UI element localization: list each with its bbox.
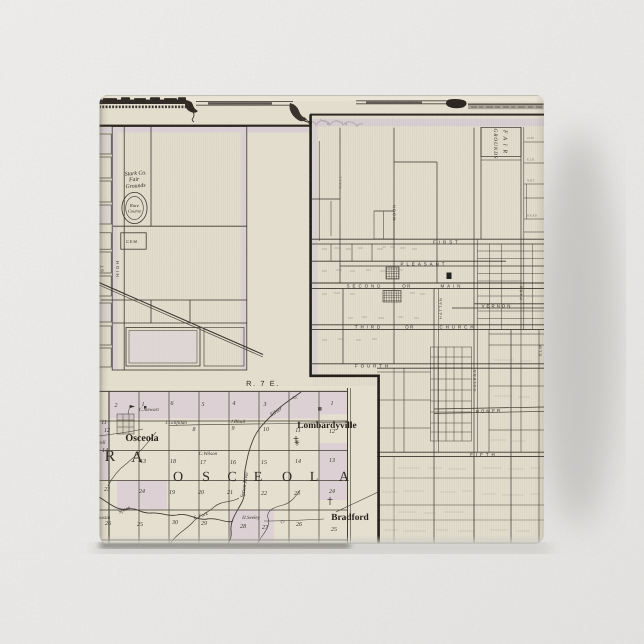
svg-text:Cr.: Cr. (292, 395, 298, 400)
svg-text:24: 24 (329, 489, 335, 495)
svg-text:HIGH: HIGH (115, 259, 120, 276)
svg-text:9: 9 (232, 426, 235, 432)
svg-text:MOON: MOON (393, 204, 397, 221)
svg-text:16: 16 (230, 460, 236, 466)
svg-text:2: 2 (115, 403, 118, 409)
svg-text:PLEASANT: PLEASANT (401, 261, 448, 266)
svg-text:8: 8 (193, 427, 196, 433)
svg-text:E.L.R.: E.L.R. (527, 158, 535, 162)
svg-text:J.Black: J.Black (231, 419, 247, 425)
svg-text:25: 25 (137, 522, 143, 528)
svg-text:28: 28 (240, 524, 246, 530)
svg-text:1: 1 (331, 401, 334, 407)
svg-text:HATTAN: HATTAN (439, 297, 443, 319)
svg-text:E: E (254, 470, 263, 485)
svg-text:Osceola: Osceola (125, 433, 158, 444)
svg-text:OR: OR (405, 325, 414, 330)
svg-text:SECOND: SECOND (347, 284, 384, 289)
svg-text:10: 10 (263, 427, 269, 433)
svg-text:O: O (173, 470, 183, 485)
svg-text:GROUNDS: GROUNDS (492, 129, 498, 160)
svg-text:CEM.: CEM. (126, 239, 140, 244)
svg-text:FOURTH: FOURTH (355, 364, 391, 369)
svg-text:WALL: WALL (339, 175, 343, 189)
svg-text:VERNON: VERNON (482, 304, 513, 309)
svg-text:OR: OR (402, 284, 411, 289)
svg-text:17: 17 (200, 460, 207, 466)
svg-text:13: 13 (140, 459, 146, 465)
svg-text:24: 24 (139, 489, 145, 495)
svg-text:C: C (227, 470, 236, 485)
svg-text:27: 27 (262, 525, 269, 531)
svg-text:25: 25 (331, 527, 337, 533)
svg-text:26: 26 (296, 522, 302, 528)
svg-text:29: 29 (201, 521, 207, 527)
svg-text:19: 19 (169, 490, 175, 496)
svg-text:Race: Race (129, 203, 139, 208)
svg-text:FIRST: FIRST (433, 239, 461, 244)
svg-text:14: 14 (295, 459, 301, 465)
svg-text:Grounds: Grounds (125, 182, 146, 190)
svg-text:PARK: PARK (520, 285, 524, 300)
svg-text:HOMER: HOMER (476, 408, 503, 414)
svg-text:11: 11 (295, 428, 301, 434)
svg-text:22: 22 (261, 491, 267, 497)
svg-text:H.Seeley: H.Seeley (241, 515, 260, 521)
svg-text:21: 21 (227, 490, 233, 496)
svg-text:20: 20 (198, 490, 204, 496)
svg-text:4: 4 (233, 401, 236, 407)
svg-text:L: L (310, 470, 319, 485)
svg-text:THIRD: THIRD (355, 325, 383, 330)
svg-text:Lombardyville: Lombardyville (297, 421, 356, 431)
svg-text:18: 18 (170, 459, 176, 465)
svg-text:3: 3 (263, 402, 267, 408)
svg-text:15: 15 (261, 460, 267, 466)
svg-text:FIFTH: FIFTH (470, 452, 497, 457)
svg-text:23: 23 (294, 491, 300, 497)
svg-text:21.30: 21.30 (527, 136, 534, 140)
svg-text:12: 12 (329, 429, 335, 435)
svg-text:30: 30 (171, 520, 178, 526)
svg-text:N.B.T.: N.B.T. (527, 179, 535, 183)
svg-text:J.Gillfillan: J.Gillfillan (165, 420, 187, 426)
svg-text:A: A (339, 470, 350, 485)
svg-text:6: 6 (171, 401, 174, 407)
svg-text:Course: Course (128, 209, 141, 214)
svg-text:MAIN: MAIN (441, 284, 464, 289)
svg-text:R. 7 E.: R. 7 E. (246, 379, 280, 388)
svg-text:GALENA: GALENA (473, 369, 477, 392)
svg-text:CHURCH: CHURCH (439, 325, 476, 330)
svg-text:Bradford: Bradford (331, 513, 369, 523)
svg-text:S: S (202, 470, 210, 485)
svg-text:C.Stewart: C.Stewart (139, 407, 159, 413)
svg-text:O: O (282, 470, 292, 485)
svg-text:13: 13 (329, 458, 335, 464)
svg-text:5: 5 (202, 402, 205, 408)
svg-text:C.Wilson: C.Wilson (199, 451, 218, 457)
